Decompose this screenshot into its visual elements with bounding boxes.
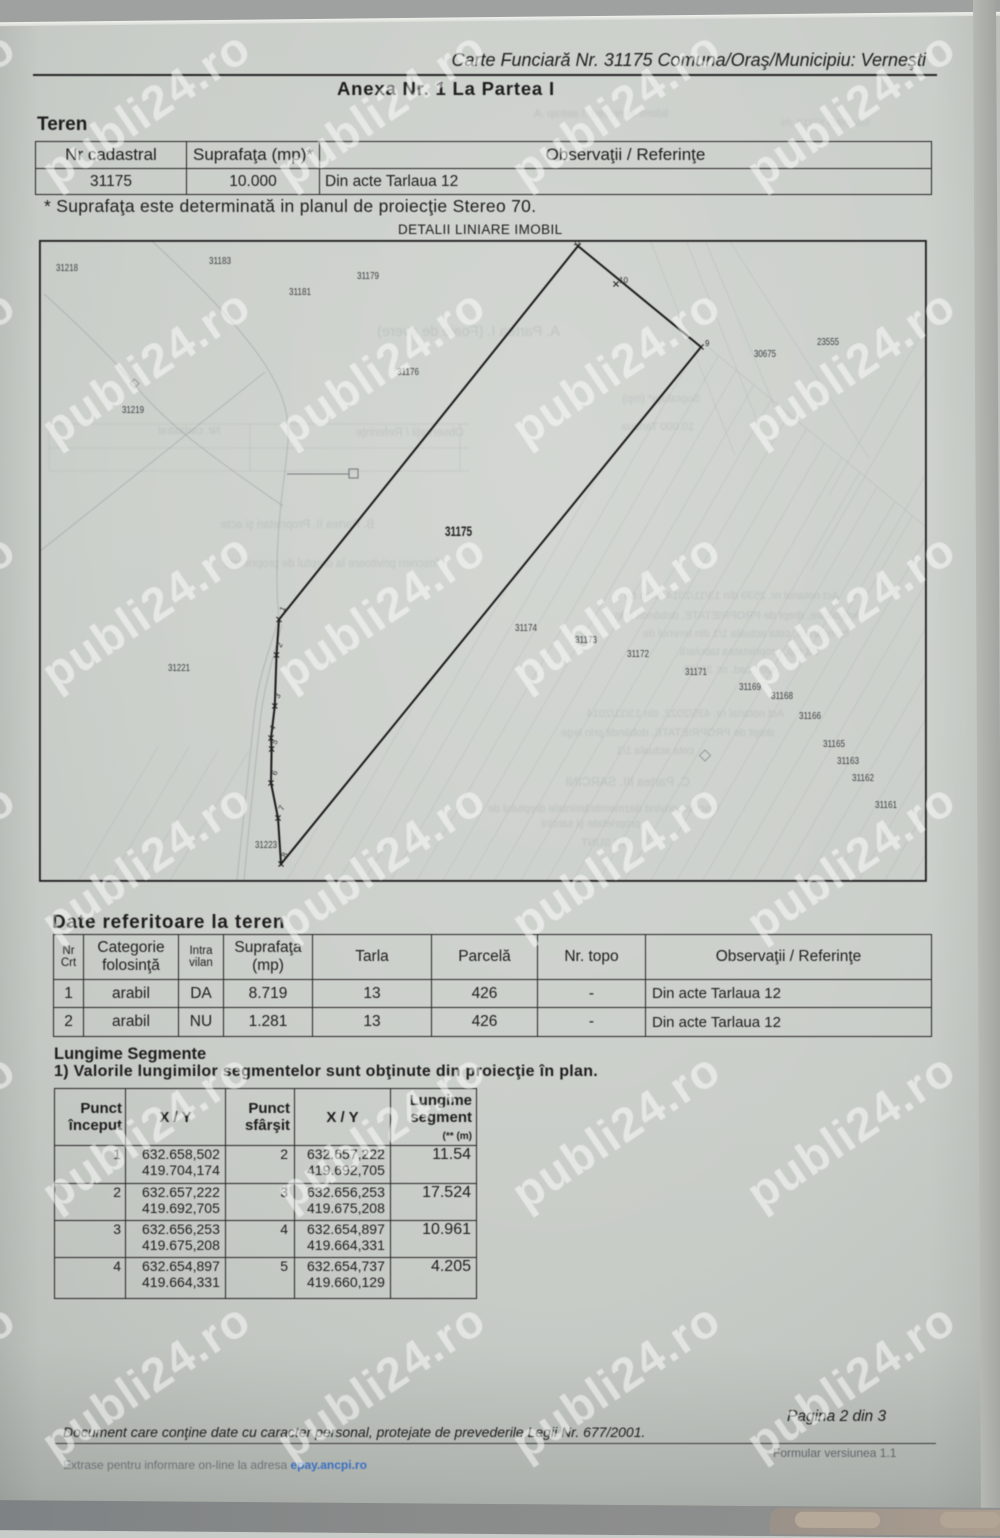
svg-text:31175: 31175 (445, 523, 472, 539)
svg-text:31161: 31161 (875, 799, 897, 811)
svg-text:31179: 31179 (357, 270, 379, 282)
svg-text:9: 9 (705, 339, 710, 348)
svg-text:proprietate şi sarcini: proprietate şi sarcini (542, 818, 640, 830)
svg-text:30675: 30675 (754, 348, 776, 360)
svg-text:cota actuala 1/1: cota actuala 1/1 (616, 745, 694, 757)
svg-text:31223: 31223 (255, 839, 277, 851)
svg-text:înscrieri privitoare la dreptu: înscrieri privitoare la dreptul de propr… (224, 558, 440, 570)
svg-text:31173: 31173 (575, 634, 597, 646)
svg-text:Nr. cadastral: Nr. cadastral (158, 425, 220, 437)
svg-text:23555: 23555 (817, 336, 839, 348)
svg-text:31171: 31171 (685, 666, 707, 678)
svg-text:7: 7 (277, 804, 287, 812)
svg-text:10: 10 (619, 276, 629, 285)
svg-text:B2 mp, proprietatea tabulară: B2 mp, proprietatea tabulară (679, 646, 819, 658)
svg-text:Act notarial nr. 2539 din 13/1: Act notarial nr. 2539 din 13/11/2014 emi… (625, 590, 839, 602)
svg-text:31172: 31172 (627, 648, 649, 660)
svg-text:31219: 31219 (122, 404, 144, 416)
svg-text:31183: 31183 (209, 255, 231, 267)
svg-text:31168: 31168 (771, 690, 793, 702)
svg-text:31174: 31174 (515, 622, 537, 634)
svg-text:Observaţii / Referinţe: Observaţii / Referinţe (356, 427, 464, 439)
svg-text:Intabulare, drept de PROPRIETA: Intabulare, drept de PROPRIETATE, dobând… (615, 610, 859, 622)
svg-text:A. Partea I. (Foaie de avere): A. Partea I. (Foaie de avere) (377, 324, 560, 340)
svg-text:31176: 31176 (397, 366, 419, 378)
svg-text:31221: 31221 (168, 662, 190, 674)
svg-text:31163: 31163 (837, 755, 859, 767)
svg-text:31166: 31166 (799, 710, 821, 722)
svg-text:C. Partea III. SARCINI: C. Partea III. SARCINI (566, 775, 690, 789)
svg-text:31162: 31162 (852, 772, 874, 784)
svg-text:31181: 31181 (289, 286, 311, 298)
svg-text:31218: 31218 (56, 262, 78, 274)
svg-text:31169: 31169 (739, 681, 761, 693)
svg-text:31165: 31165 (823, 738, 845, 750)
svg-text:1: 1 (278, 605, 288, 613)
svg-text:drept de PROPRIETATE, dobândit: drept de PROPRIETATE, dobândit prin lege (561, 727, 774, 739)
svg-text:înscrieri privind dezmembrămin: înscrieri privind dezmembrămintele drept… (488, 803, 720, 815)
